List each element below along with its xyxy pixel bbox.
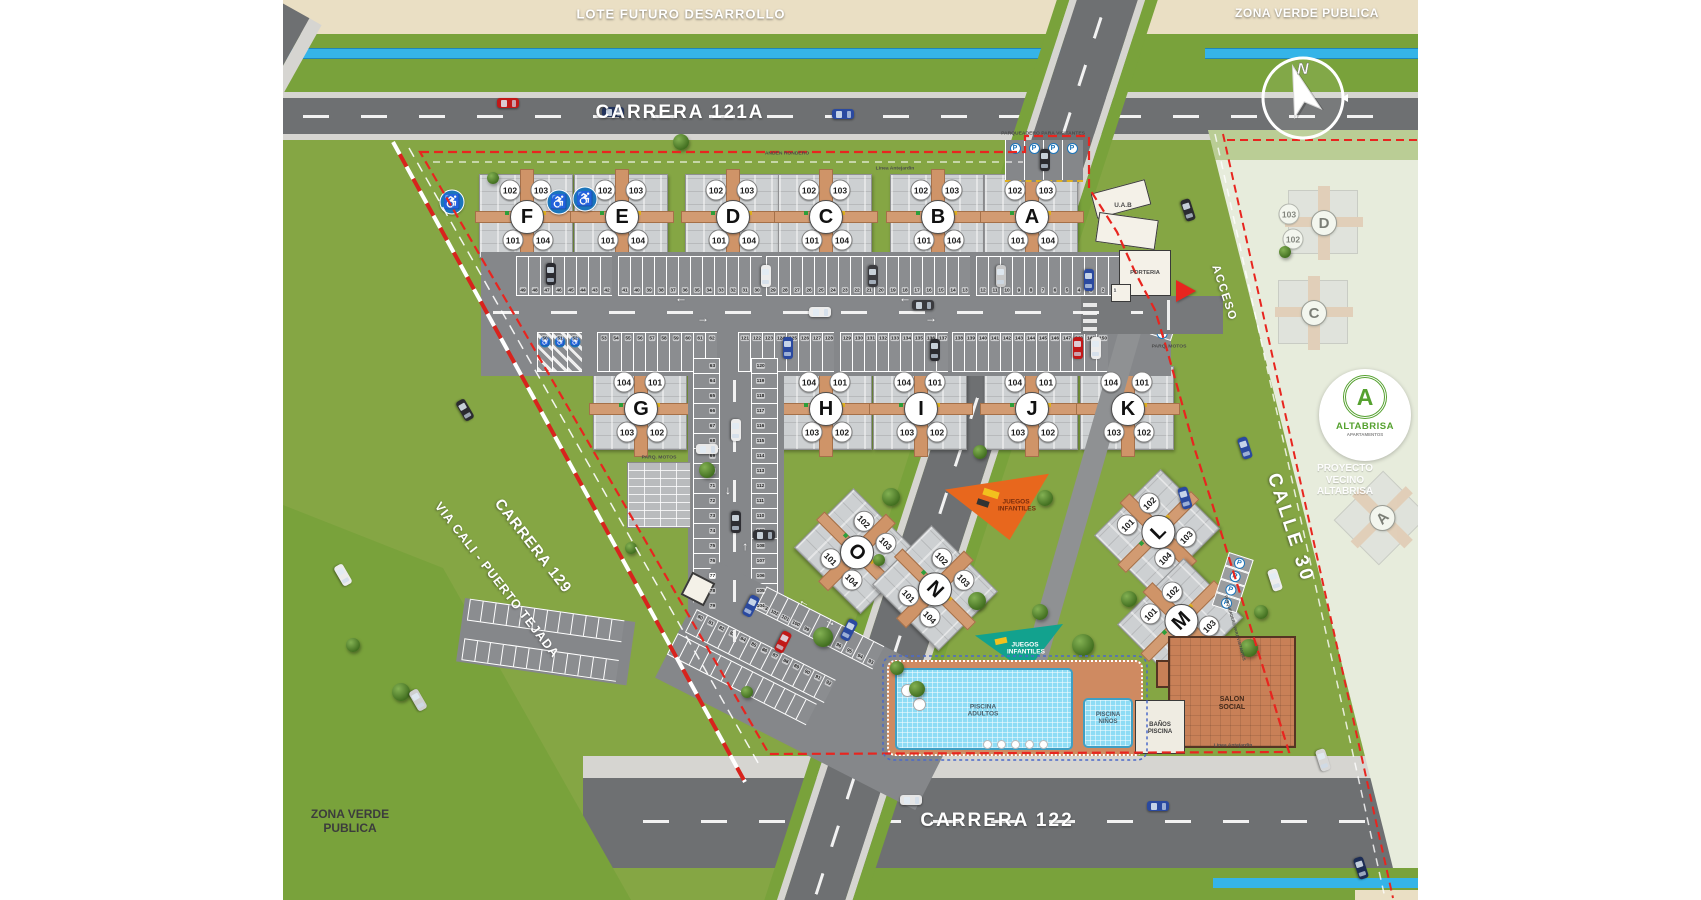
car-window xyxy=(1243,451,1251,457)
car-window xyxy=(1042,164,1049,168)
road-label-calle-30: CALLE 30 xyxy=(1262,471,1318,586)
car xyxy=(930,339,940,361)
car-window xyxy=(998,280,1005,284)
car-window xyxy=(342,577,350,584)
car-window xyxy=(904,797,910,804)
car xyxy=(455,398,475,422)
car xyxy=(497,98,519,108)
car-window xyxy=(998,269,1005,275)
car-window xyxy=(1180,490,1188,498)
car-window xyxy=(512,100,516,107)
car-window xyxy=(1356,860,1365,868)
salon-social-label: SALON SOCIAL xyxy=(1207,696,1257,712)
car-window xyxy=(785,352,792,356)
car xyxy=(761,265,771,287)
car-window xyxy=(1042,153,1049,159)
car-window xyxy=(776,644,784,651)
compass-north-label: N xyxy=(1297,61,1309,78)
lane-arrow: → xyxy=(925,312,937,324)
lane-arrow: → xyxy=(899,296,911,308)
anden-rondero-label: ANDEN RONDERO xyxy=(765,150,809,156)
car xyxy=(1177,486,1193,510)
car xyxy=(1040,149,1050,171)
road-label-carrera-121a: CARRERA 121A xyxy=(596,102,765,124)
site-plan-page: DCA103102 A ALTABRISA APARTAMENTOS PROYE… xyxy=(0,0,1701,900)
car-window xyxy=(501,100,507,107)
piscina-adultos-label: PISCINA ADULTOS xyxy=(964,704,1002,719)
car xyxy=(912,300,934,310)
area-label-zona-verde-top: ZONA VERDE PUBLICA xyxy=(1235,6,1379,20)
lane-arrow: → xyxy=(697,312,709,324)
car-window xyxy=(870,269,877,275)
car-window xyxy=(847,111,851,118)
car-window xyxy=(700,446,706,453)
visitor-parking-label: PARQUEADERO PARA VISITANTES xyxy=(1224,595,1247,661)
car-window xyxy=(548,267,555,273)
car-window xyxy=(733,423,740,429)
car-window xyxy=(813,309,819,316)
site-plan-map: DCA103102 A ALTABRISA APARTAMENTOS PROYE… xyxy=(283,0,1418,900)
linea-antejardin-label: Linea Antejardin xyxy=(1214,742,1253,748)
car xyxy=(1180,198,1196,222)
compass: N xyxy=(1257,52,1349,144)
car xyxy=(1353,856,1369,880)
linea-antejardin-label: Linea Antejardin xyxy=(876,165,915,171)
car-window xyxy=(785,341,792,347)
car-window xyxy=(1270,572,1279,580)
car-window xyxy=(824,309,828,316)
car-window xyxy=(336,567,345,576)
car xyxy=(1073,337,1083,359)
moto-parking-label: PARQ. MOTOS xyxy=(642,454,677,460)
car-window xyxy=(932,343,939,349)
car-window xyxy=(748,598,757,607)
car xyxy=(731,419,741,441)
car xyxy=(731,511,741,533)
car-window xyxy=(1086,284,1093,288)
car-window xyxy=(733,526,740,530)
car xyxy=(783,337,793,359)
car-window xyxy=(458,402,467,411)
car xyxy=(1267,568,1283,592)
car-window xyxy=(1151,803,1157,810)
car xyxy=(840,618,859,642)
lane-arrow: → xyxy=(675,296,687,308)
area-label-lote-futuro: LOTE FUTURO DESARROLLO xyxy=(576,7,785,22)
car-window xyxy=(1086,273,1093,279)
car xyxy=(1315,748,1331,772)
car-window xyxy=(1075,341,1082,347)
car xyxy=(546,263,556,285)
playground-label-orange: JUEGOS INFANTILES xyxy=(998,499,1034,514)
lane-arrow: → xyxy=(795,597,811,613)
road-label-via-cali: VIA CALI - PUERTO TEJADA xyxy=(432,499,562,660)
lane-arrow: → xyxy=(737,541,749,553)
car-window xyxy=(932,354,939,358)
car-window xyxy=(846,622,855,631)
car-window xyxy=(733,434,740,438)
car xyxy=(832,109,854,119)
moto-parking-label: PARQ. MOTOS xyxy=(1152,343,1187,349)
car xyxy=(809,307,831,317)
car xyxy=(408,688,428,712)
car-window xyxy=(1162,803,1166,810)
car-window xyxy=(1075,352,1082,356)
car-window xyxy=(411,692,420,701)
annotations: LOTE FUTURO DESARROLLO ZONA VERDE PUBLIC… xyxy=(283,0,1418,900)
visitor-parking-label: PARQUEADERO PARA VISITANTES xyxy=(1001,130,1085,136)
car-window xyxy=(1318,752,1327,760)
road-label-acceso: ACCESO xyxy=(1209,263,1238,322)
car-window xyxy=(836,111,842,118)
car xyxy=(1237,436,1253,460)
car-window xyxy=(842,632,850,639)
car-window xyxy=(1183,202,1192,210)
car xyxy=(1091,337,1101,359)
car xyxy=(1147,801,1169,811)
access-arrow xyxy=(1176,280,1196,302)
uab-label: U.A.B xyxy=(1114,201,1131,208)
car-window xyxy=(733,515,740,521)
lane-arrow: → xyxy=(823,613,839,629)
car xyxy=(1084,269,1094,291)
area-label-zona-verde-bottom: ZONA VERDE PUBLICA xyxy=(304,808,396,836)
car-window xyxy=(763,280,770,284)
car-window xyxy=(780,634,789,643)
car-window xyxy=(763,269,770,275)
car-window xyxy=(1183,501,1191,507)
car-window xyxy=(744,608,752,615)
car xyxy=(900,795,922,805)
road-label-carrera-122: CARRERA 122 xyxy=(920,810,1073,832)
car xyxy=(333,563,353,587)
car-window xyxy=(768,532,772,539)
car-window xyxy=(464,412,472,419)
car-window xyxy=(417,702,425,709)
car-window xyxy=(1093,352,1100,356)
car-window xyxy=(757,532,763,539)
car-window xyxy=(1273,583,1281,589)
lane-arrow: → xyxy=(724,485,736,497)
car-window xyxy=(870,280,877,284)
porteria-label: PORTERIA xyxy=(1130,269,1160,275)
banos-piscina-label: BAÑOS PISCINA xyxy=(1145,722,1175,736)
car xyxy=(753,530,775,540)
car xyxy=(742,594,761,618)
car xyxy=(696,444,718,454)
car-window xyxy=(548,278,555,282)
car-window xyxy=(1093,341,1100,347)
car-window xyxy=(916,302,922,309)
car-window xyxy=(1240,440,1249,448)
car-window xyxy=(711,446,715,453)
car-window xyxy=(1359,871,1367,877)
car-window xyxy=(915,797,919,804)
car xyxy=(868,265,878,287)
car-window xyxy=(1321,763,1329,769)
piscina-ninos-label: PISCINA NIÑOS xyxy=(1093,712,1123,726)
car xyxy=(774,630,793,654)
car-window xyxy=(1186,213,1194,219)
car xyxy=(996,265,1006,287)
car-window xyxy=(927,302,931,309)
playground-label-teal: JUEGOS INFANTILES xyxy=(1007,642,1043,657)
